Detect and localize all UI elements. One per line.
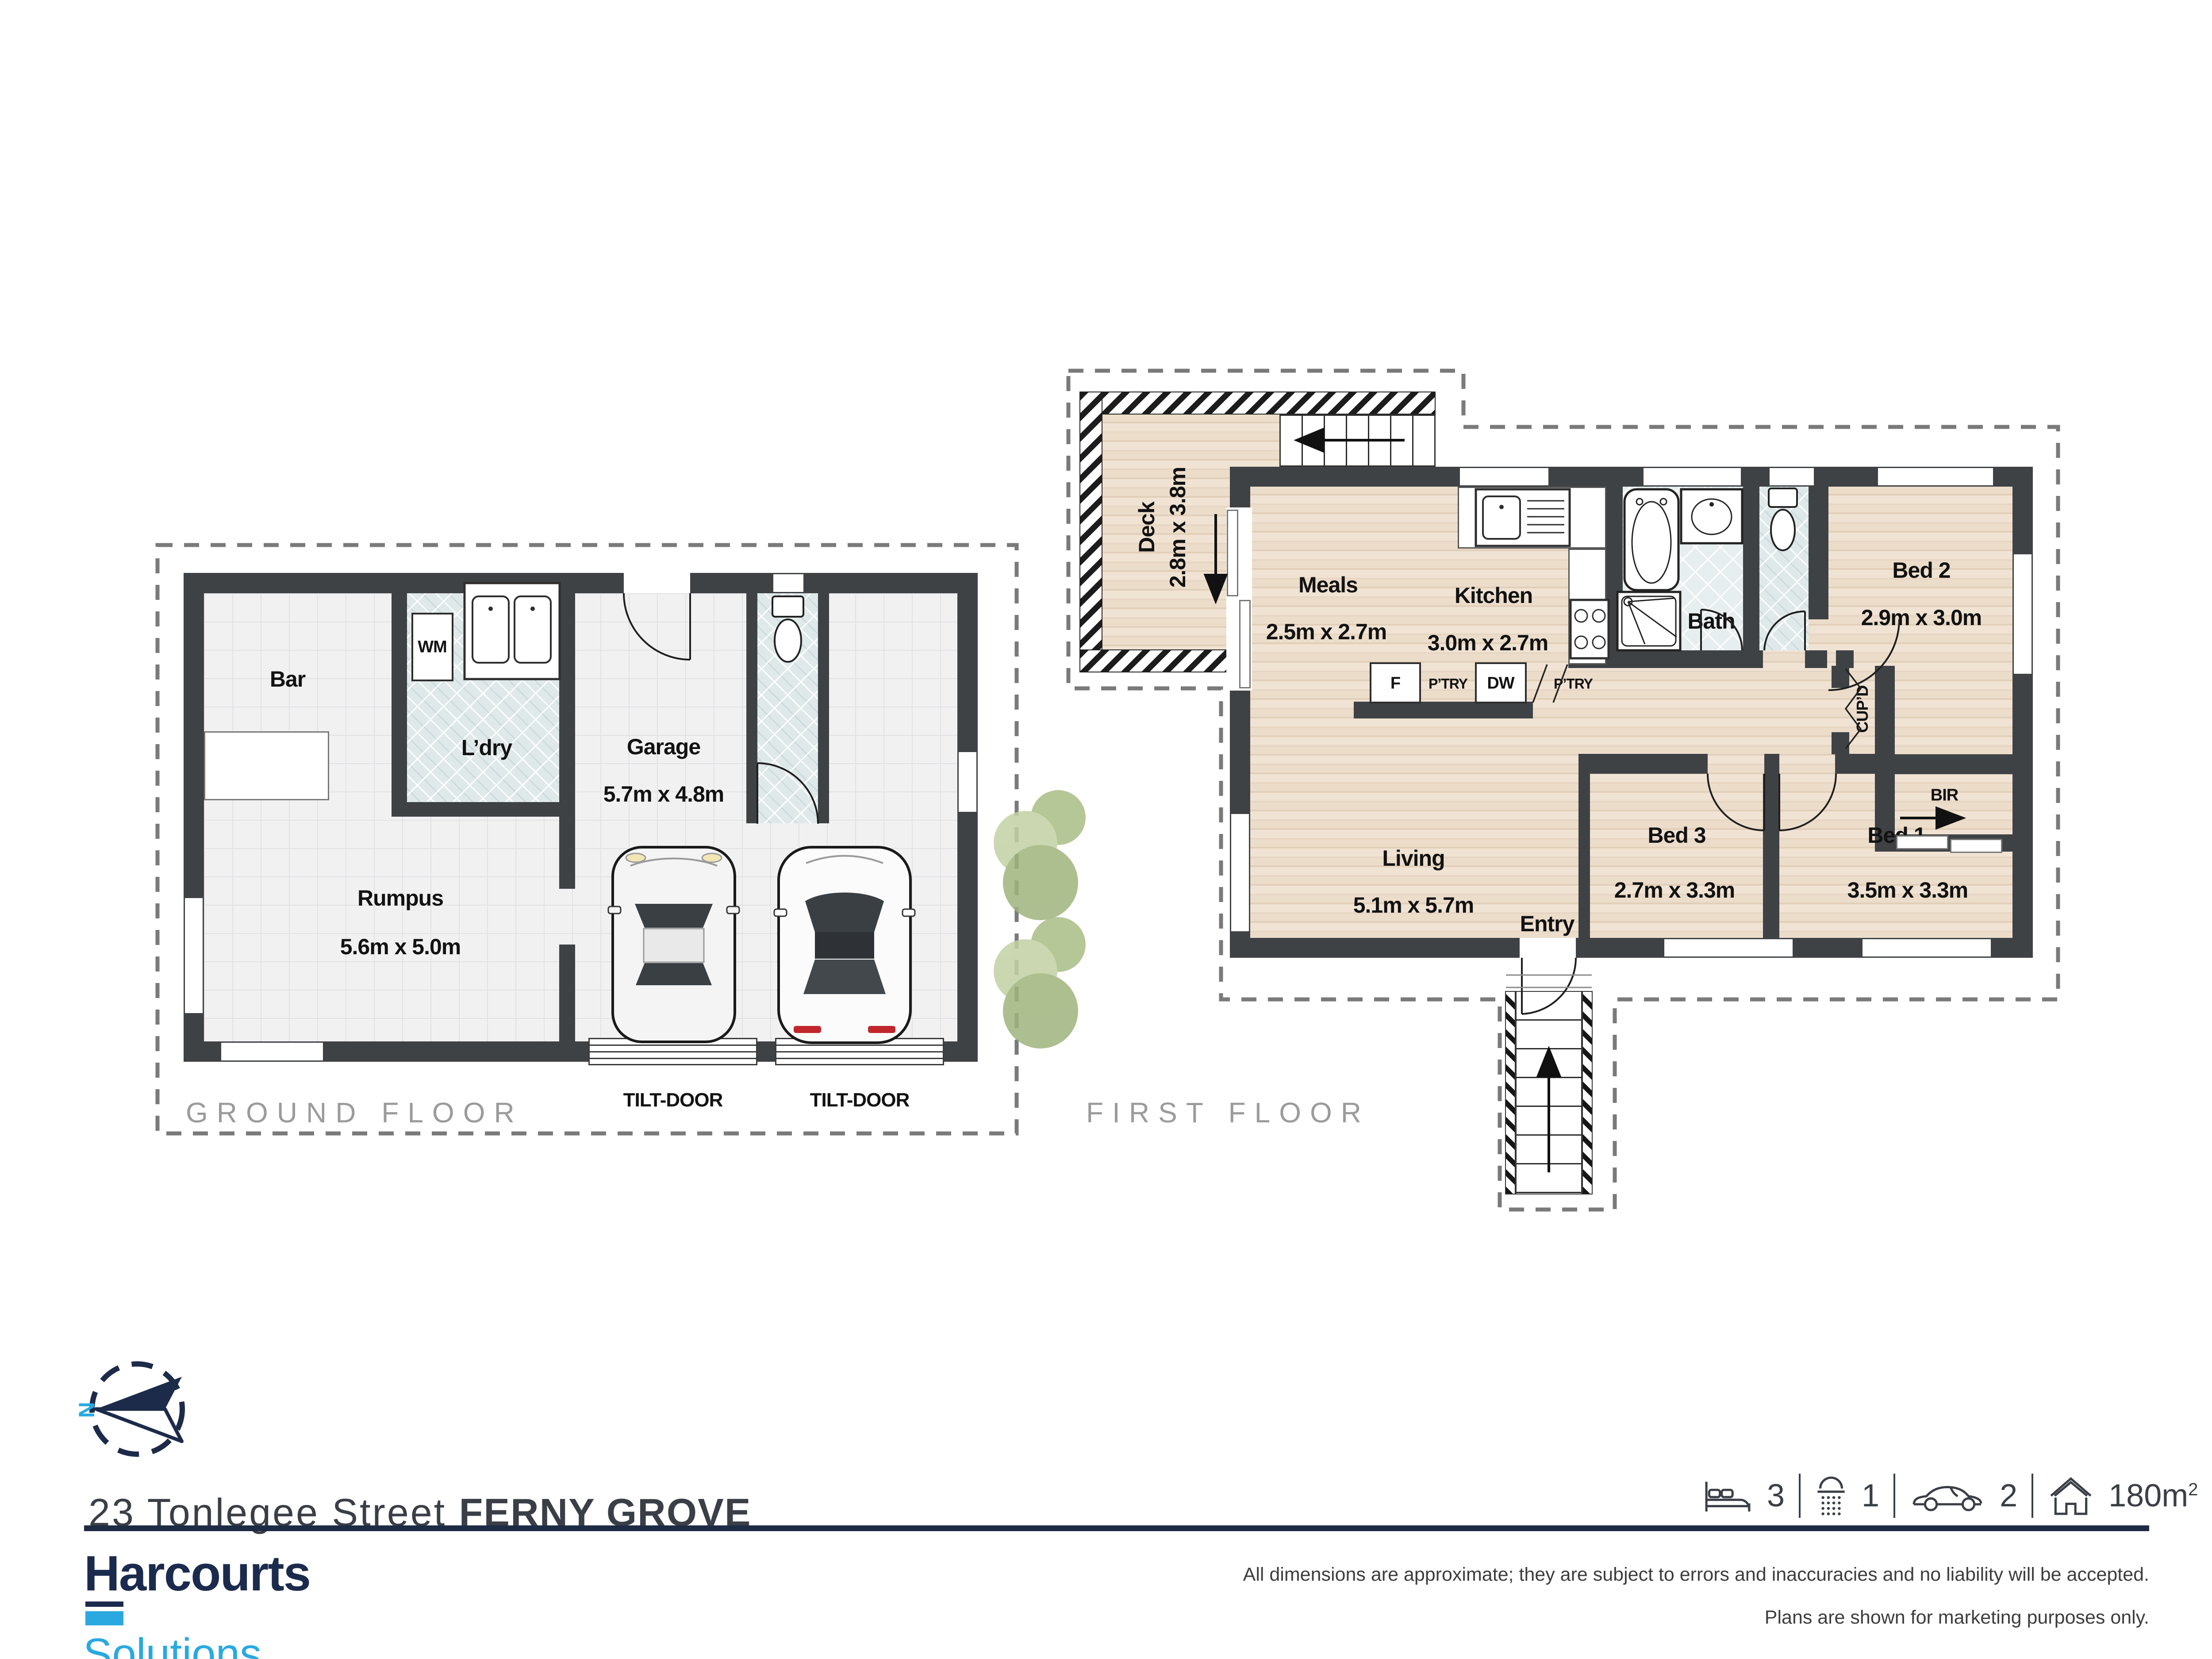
bifold-door	[1846, 669, 1861, 749]
plan-vector-overlay	[0, 0, 2212, 1659]
bed-icon	[1703, 1478, 1753, 1513]
brand-accent-bar	[85, 1611, 123, 1625]
car-sports	[774, 847, 915, 1043]
ground-floor-boundary	[157, 545, 1017, 1133]
tree-cluster	[994, 917, 1086, 1048]
house-area-icon	[2047, 1475, 2094, 1517]
stats-divider	[2032, 1474, 2033, 1518]
disclaimer-line2: Plans are shown for marketing purposes o…	[1765, 1607, 2149, 1628]
stats-divider	[1893, 1474, 1895, 1518]
laundry-sink	[465, 583, 560, 679]
bath-vanity	[1681, 489, 1742, 543]
car-sedan	[608, 847, 739, 1042]
bathtub	[1624, 489, 1678, 590]
open-double-door	[1533, 664, 1567, 703]
landing-steps	[1506, 975, 1592, 987]
brand-solutions: Solutions	[83, 1629, 261, 1659]
door-arc	[1522, 610, 1899, 1014]
disclaimer-line1: All dimensions are approximate; they are…	[1243, 1564, 2149, 1586]
tree-cluster	[994, 790, 1086, 920]
brand-harcourts: Harcourts	[84, 1545, 310, 1602]
beds-count: 3	[1767, 1478, 1785, 1514]
shower	[1617, 592, 1680, 650]
baths-count: 1	[1862, 1478, 1879, 1514]
stats-divider	[1799, 1474, 1801, 1518]
car-icon	[1909, 1479, 1985, 1513]
direction-arrow	[1206, 430, 1962, 1172]
footer-divider-line	[84, 1525, 2149, 1531]
floor-area: 180m2	[2108, 1478, 2198, 1514]
cars-count: 2	[2000, 1478, 2017, 1514]
compass-north-label: N	[74, 1402, 100, 1418]
toilet-ground	[772, 596, 803, 662]
kitchen-sink	[1476, 489, 1570, 546]
floorplan-page: Bar WM L’dry Garage 5.7m x 4.8m Rumpus 5…	[0, 0, 2212, 1659]
toilet-first	[1769, 488, 1797, 550]
brand-underline	[85, 1601, 123, 1607]
shower-icon	[1815, 1475, 1847, 1517]
stove	[1571, 600, 1609, 658]
property-stats: 3 1 2 180m2	[1703, 1468, 2198, 1523]
